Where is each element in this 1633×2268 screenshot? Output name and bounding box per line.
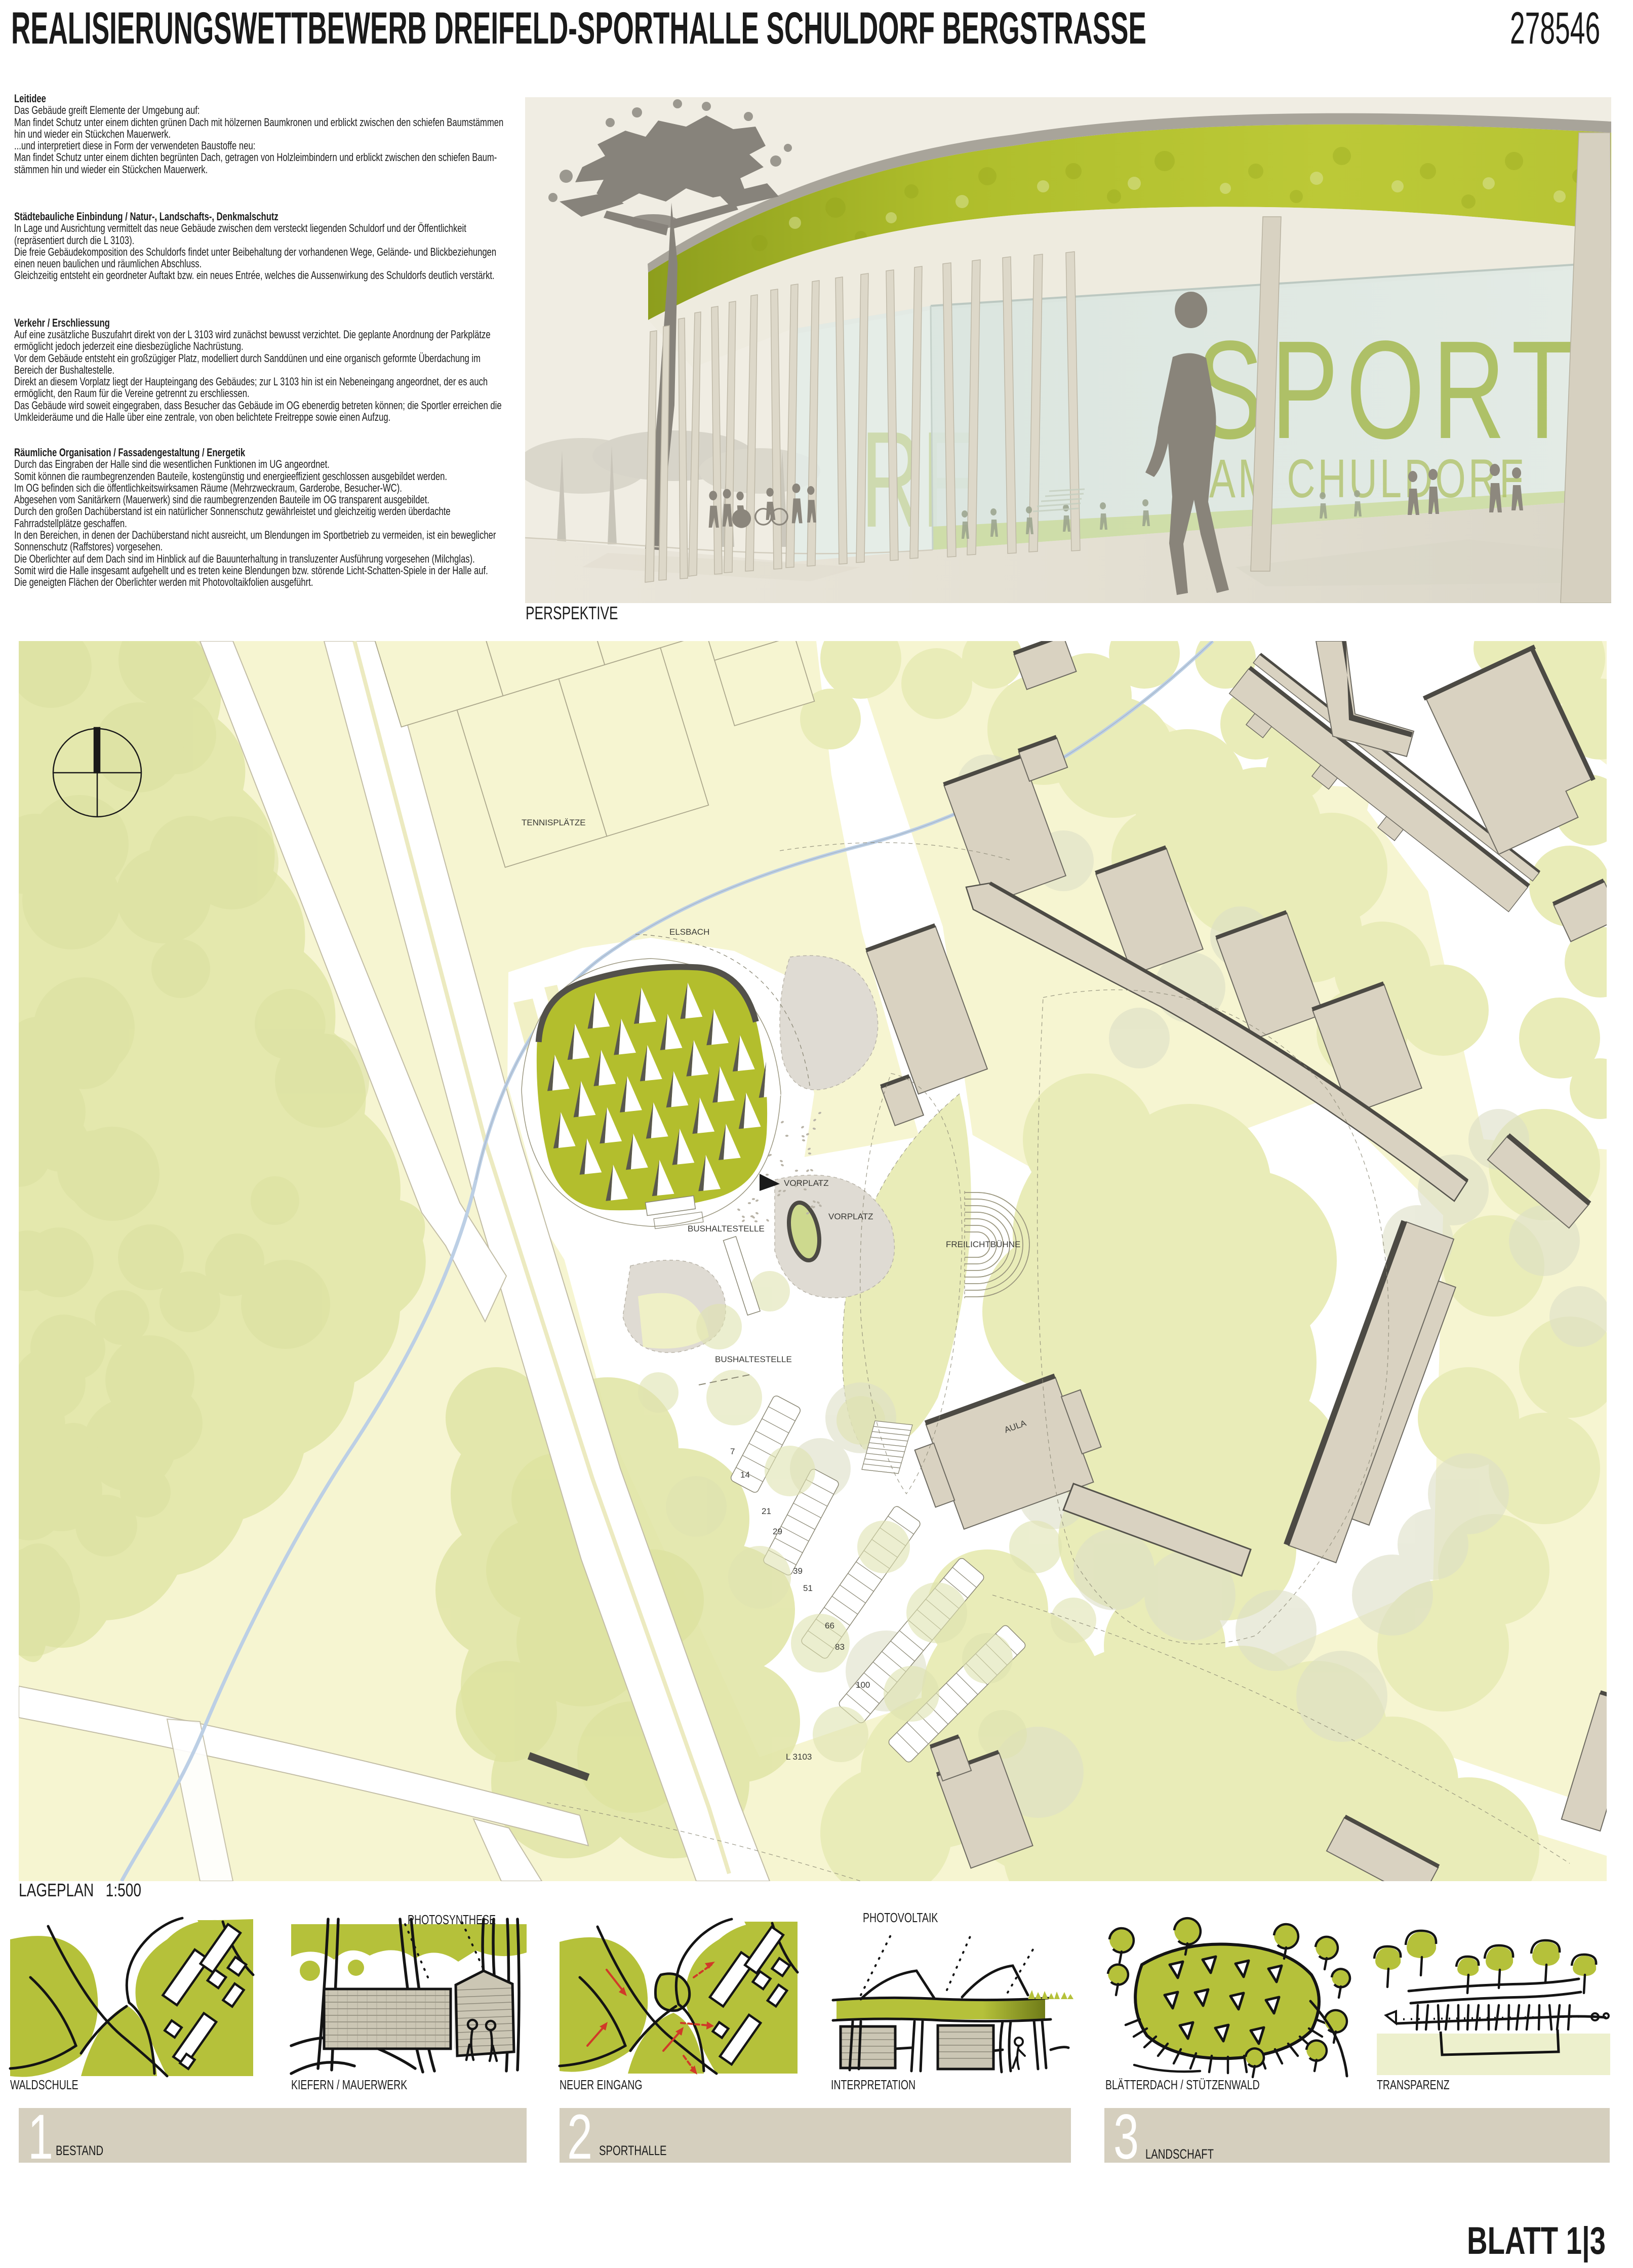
svg-text:PHOTOVOLTAIK: PHOTOVOLTAIK <box>863 1910 938 1925</box>
svg-text:100: 100 <box>856 1680 870 1690</box>
svg-text:7: 7 <box>730 1447 735 1456</box>
svg-text:L 3103: L 3103 <box>786 1752 812 1762</box>
svg-text:KIEFERN / MAUERWERK: KIEFERN / MAUERWERK <box>291 2077 408 2092</box>
svg-text:BUSHALTESTELLE: BUSHALTESTELLE <box>688 1224 765 1234</box>
svg-text:39: 39 <box>793 1566 803 1576</box>
svg-text:NEUER EINGANG: NEUER EINGANG <box>560 2077 643 2092</box>
svg-text:PHOTOSYNTHESE: PHOTOSYNTHESE <box>408 1912 496 1927</box>
svg-text:WALDSCHULE: WALDSCHULE <box>10 2077 78 2092</box>
svg-text:VORPLATZ: VORPLATZ <box>784 1178 828 1188</box>
svg-text:ELSBACH: ELSBACH <box>669 927 709 937</box>
svg-text:VORPLATZ: VORPLATZ <box>828 1212 873 1221</box>
svg-text:66: 66 <box>825 1621 834 1630</box>
svg-text:LANDSCHAFT: LANDSCHAFT <box>1145 2146 1214 2162</box>
svg-text:BLÄTTERDACH / STÜTZENWALD: BLÄTTERDACH / STÜTZENWALD <box>1105 2077 1260 2092</box>
svg-text:21: 21 <box>762 1506 771 1516</box>
svg-text:2: 2 <box>567 2102 592 2173</box>
svg-text:TRANSPARENZ: TRANSPARENZ <box>1377 2077 1450 2092</box>
svg-text:51: 51 <box>803 1583 813 1593</box>
svg-text:SPORT: SPORT <box>1196 311 1581 468</box>
svg-text:83: 83 <box>835 1642 845 1652</box>
svg-text:14: 14 <box>740 1470 750 1480</box>
svg-text:BESTAND: BESTAND <box>56 2143 103 2159</box>
svg-text:3: 3 <box>1113 2102 1139 2173</box>
svg-text:SPORTHALLE: SPORTHALLE <box>599 2143 667 2159</box>
svg-text:TENNISPLÄTZE: TENNISPLÄTZE <box>522 818 586 827</box>
svg-text:29: 29 <box>773 1527 782 1536</box>
svg-text:BUSHALTESTELLE: BUSHALTESTELLE <box>715 1355 792 1364</box>
svg-text:FREILICHTBÜHNE: FREILICHTBÜHNE <box>946 1240 1020 1249</box>
svg-text:1: 1 <box>28 2102 53 2173</box>
svg-text:INTERPRETATION: INTERPRETATION <box>831 2077 915 2092</box>
